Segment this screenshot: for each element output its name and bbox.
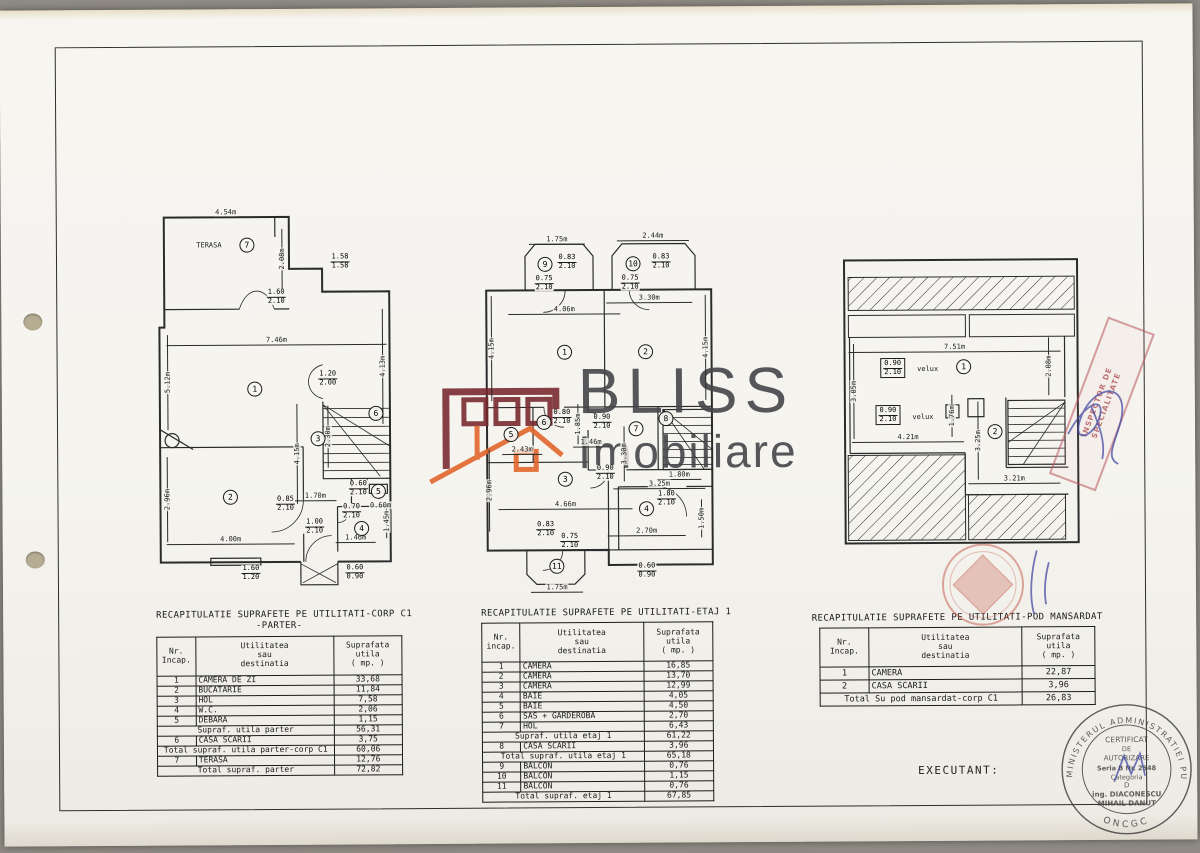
dimension-label: 3.21m [1003, 474, 1026, 482]
dimension-label: 4.15m [487, 337, 495, 360]
dimension-label: 4.54m [214, 208, 237, 216]
dimension-label: 0.752.10 [621, 275, 640, 291]
dimension-label: 3.25m [974, 429, 982, 452]
dimension-label: 3.30m [638, 294, 661, 302]
floor-plan-parter: 4.54mTERASA72.08m1.581.581.602.107.46m5.… [154, 206, 406, 598]
stamp-line: AUTORIZARE [1104, 753, 1150, 762]
dimension-label: 0.902.10 [596, 465, 615, 481]
dimension-label: 4.06m [553, 305, 576, 313]
table-title: RECAPITULATIE SUPRAFETE PE UTILITATI-POD… [809, 612, 1105, 625]
table-header-cell: Nr.Incap. [820, 628, 869, 667]
executant-label: EXECUTANT: [918, 764, 999, 777]
room-number: 4 [354, 521, 369, 536]
room-number: 5 [371, 484, 386, 499]
dimension-label: 5.12m [164, 371, 172, 394]
dimension-label: 0.832.10 [536, 521, 555, 537]
dimension-label: 1.85m [574, 413, 582, 436]
dimension-label: 0.600.90 [637, 562, 656, 578]
dimension-label: 2.43m [511, 445, 534, 453]
dimension-label: 4.66m [554, 500, 577, 508]
dimension-label: 0.832.10 [558, 254, 577, 270]
stamp-line: MIHAIL DANUT [1098, 798, 1156, 807]
dimension-label: 1.76m [948, 404, 956, 427]
table-title: RECAPITULATIE SUPRAFETE PE UTILITATI-COR… [156, 609, 402, 622]
scanned-floor-plan-document: 4.54mTERASA72.08m1.581.581.602.107.46m5.… [0, 0, 1200, 853]
dimension-label: velux [911, 413, 934, 421]
dimension-label: 1.46m [580, 438, 603, 446]
dimension-label: 0.752.10 [535, 275, 554, 291]
room-number: 6 [536, 415, 551, 430]
dimension-label: 0.60m [369, 501, 392, 509]
floor-plan-pod-drawing [837, 252, 1084, 548]
room-number: 2 [223, 490, 238, 505]
dimension-label: 3.25m [648, 480, 671, 488]
room-number: 2 [638, 344, 653, 359]
dimension-label: 0.702.10 [342, 503, 361, 519]
dimension-label: 1.802.10 [657, 490, 676, 506]
room-number: 5 [504, 427, 519, 442]
table-header-cell: Suprafatautila( mp. ) [1022, 627, 1095, 666]
table-row: Total supraf. parter72,82 [158, 764, 403, 775]
dimension-label: 1.002.10 [305, 518, 324, 534]
dimension-label: TERASA [195, 241, 222, 249]
room-number: 3 [311, 431, 326, 446]
dimension-label: 1.80m [668, 470, 691, 478]
dimension-label: 0.902.10 [875, 405, 900, 426]
dimension-label: 1.50m [698, 507, 706, 530]
dimension-label: 2.08m [1045, 355, 1053, 378]
dimension-label: 1.601.20 [241, 565, 260, 581]
stamp-line: Seria B Nr. 2548 [1097, 764, 1157, 772]
room-number: 6 [368, 406, 383, 421]
stamp-line: DE [1122, 745, 1131, 753]
certification-stamp: MINISTERUL ADMINISTRATIEI PUBLICE ONCGC … [1054, 696, 1200, 842]
stamp-ring-bottom: ONCGC [1102, 815, 1152, 830]
room-number: 8 [658, 411, 673, 426]
dimension-label: 0.802.10 [552, 409, 571, 425]
table-header-cell: Nr.Incap. [157, 636, 196, 675]
table-title: RECAPITULATIE SUPRAFETE PE UTILITATI-ETA… [481, 607, 713, 620]
table-header-cell: Utilitateasaudestinatia [196, 636, 334, 676]
dimension-label: 2.44m [641, 232, 664, 240]
dimension-label: 1.75m [545, 235, 568, 243]
dimension-label: 4.21m [897, 433, 920, 441]
dimension-label: 0.902.10 [880, 358, 905, 379]
areas-table-pod-mansardat: RECAPITULATIE SUPRAFETE PE UTILITATI-POD… [809, 612, 1106, 707]
dimension-label: 1.45m [383, 510, 391, 533]
dimension-label: 2.96m [485, 479, 493, 502]
room-number: 4 [639, 501, 654, 516]
dimension-label: 0.752.10 [560, 533, 579, 549]
dimension-label: 0.902.10 [593, 414, 612, 430]
dimension-label: 3.05m [850, 380, 858, 403]
table-header-cell: Nr.incap. [482, 623, 521, 662]
room-number: 11 [549, 559, 564, 574]
paper-sheet: 4.54mTERASA72.08m1.581.581.602.107.46m5.… [0, 3, 1198, 846]
room-number: 9 [537, 257, 552, 272]
table-header-cell: Suprafatautila( mp. ) [333, 635, 402, 674]
dimension-label: 0.602.10 [349, 480, 368, 496]
table-row: Total supraf. etaj 167,85 [483, 791, 714, 802]
dimension-label: 3.30m [620, 442, 628, 465]
areas-table-etaj-1: RECAPITULATIE SUPRAFETE PE UTILITATI-ETA… [481, 607, 714, 803]
table-title: -PARTER- [156, 620, 402, 633]
room-number: 10 [625, 256, 640, 271]
floor-plan-pod-mansardat: 7.51m2.08m3.05m0.902.10velux10.902.10vel… [837, 252, 1084, 548]
dimension-label: 0.600.90 [345, 564, 364, 580]
dimension-label: 2.70m [635, 527, 658, 535]
room-number: 3 [558, 472, 573, 487]
dimension-label: 4.13m [379, 355, 387, 378]
dimension-label: 1.70m [304, 492, 327, 500]
room-number: 7 [628, 421, 643, 436]
dimension-label: 4.15m [293, 442, 301, 465]
dimension-label: 1.202.00 [318, 370, 337, 386]
svg-text:ONCGC: ONCGC [1102, 815, 1152, 830]
table-header-cell: Utilitateasaudestinatia [520, 622, 644, 662]
areas-table: Nr.Incap.UtilitateasaudestinatiaSuprafat… [156, 635, 403, 777]
dimension-label: 2.08m [278, 247, 286, 270]
dimension-label: 7.46m [265, 336, 288, 344]
dimension-label: 1.602.10 [267, 289, 286, 305]
dimension-label: 2.96m [163, 488, 171, 511]
room-number: 1 [557, 345, 572, 360]
room-number: 7 [239, 238, 254, 253]
dimension-label: 1.581.58 [331, 253, 350, 269]
dimension-label: 0.852.10 [276, 496, 295, 512]
areas-table: Nr.Incap.UtilitateasaudestinatiaSuprafat… [819, 626, 1095, 707]
areas-table: Nr.incap.UtilitateasaudestinatiaSuprafat… [481, 622, 714, 803]
dimension-label: 4.00m [219, 535, 242, 543]
room-number: 1 [247, 382, 262, 397]
stamp-line: D [1124, 780, 1129, 789]
dimension-label: 7.51m [943, 343, 966, 351]
dimension-label: 0.832.10 [652, 253, 671, 269]
table-header-cell: Suprafatautila( mp. ) [643, 622, 713, 661]
stamp-line: ing. DIACONESCU [1092, 789, 1162, 798]
punch-hole [23, 313, 42, 330]
stamp-line: CERTIFICAT [1105, 735, 1148, 744]
room-number: 1 [956, 359, 971, 374]
room-number: 2 [988, 424, 1003, 439]
punch-hole [26, 551, 45, 568]
dimension-label: 4.15m [701, 336, 709, 359]
dimension-label: velux [916, 365, 939, 373]
dimension-label: 1.75m [545, 583, 568, 591]
areas-table-parter: RECAPITULATIE SUPRAFETE PE UTILITATI-COR… [156, 609, 403, 776]
table-header-cell: Utilitateasaudestinatia [869, 627, 1022, 667]
